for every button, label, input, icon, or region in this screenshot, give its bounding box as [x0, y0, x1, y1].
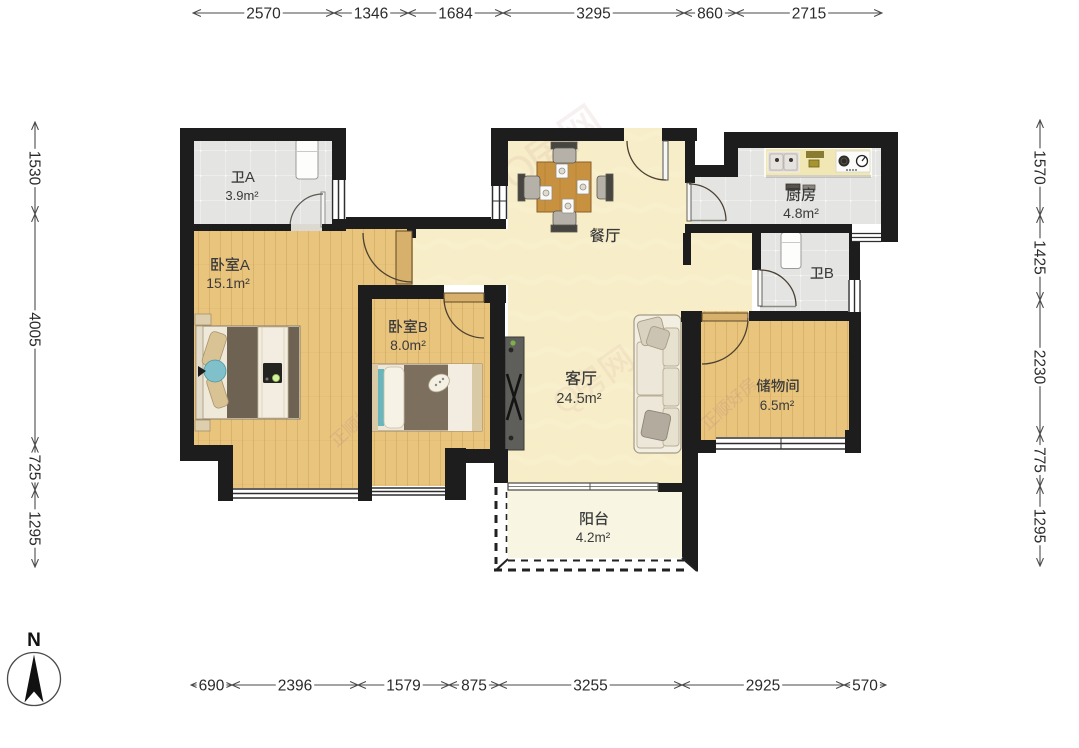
svg-text:775: 775: [1031, 447, 1048, 473]
svg-text:1346: 1346: [354, 6, 388, 23]
svg-text:1570: 1570: [1031, 150, 1048, 185]
svg-text:2715: 2715: [792, 6, 826, 23]
svg-text:875: 875: [461, 678, 487, 695]
svg-text:24.5m²: 24.5m²: [556, 391, 601, 407]
svg-text:2925: 2925: [746, 678, 780, 695]
svg-text:4005: 4005: [26, 312, 43, 346]
svg-text:2396: 2396: [278, 678, 312, 695]
svg-text:2570: 2570: [246, 6, 281, 23]
svg-text:4.2m²: 4.2m²: [576, 530, 611, 545]
svg-text:1684: 1684: [438, 6, 473, 23]
svg-text:3295: 3295: [576, 6, 610, 23]
svg-text:690: 690: [199, 678, 225, 695]
svg-text:1530: 1530: [26, 151, 43, 186]
svg-text:B: B: [824, 265, 834, 282]
svg-text:15.1m²: 15.1m²: [206, 275, 250, 291]
svg-text:A: A: [240, 257, 250, 274]
svg-text:1425: 1425: [1031, 240, 1048, 274]
svg-text:8.0m²: 8.0m²: [390, 337, 426, 353]
svg-text:2230: 2230: [1031, 350, 1048, 385]
svg-text:1295: 1295: [26, 511, 43, 545]
svg-text:1295: 1295: [1031, 509, 1048, 543]
svg-text:570: 570: [852, 678, 878, 695]
svg-text:4.8m²: 4.8m²: [783, 205, 819, 221]
svg-text:860: 860: [697, 6, 723, 23]
svg-text:6.5m²: 6.5m²: [760, 398, 795, 413]
svg-text:3255: 3255: [573, 678, 607, 695]
svg-text:N: N: [27, 630, 41, 651]
svg-text:B: B: [418, 319, 428, 336]
svg-text:725: 725: [26, 455, 43, 481]
svg-text:1579: 1579: [386, 678, 420, 695]
svg-text:A: A: [245, 169, 255, 186]
svg-text:3.9m²: 3.9m²: [225, 188, 259, 203]
